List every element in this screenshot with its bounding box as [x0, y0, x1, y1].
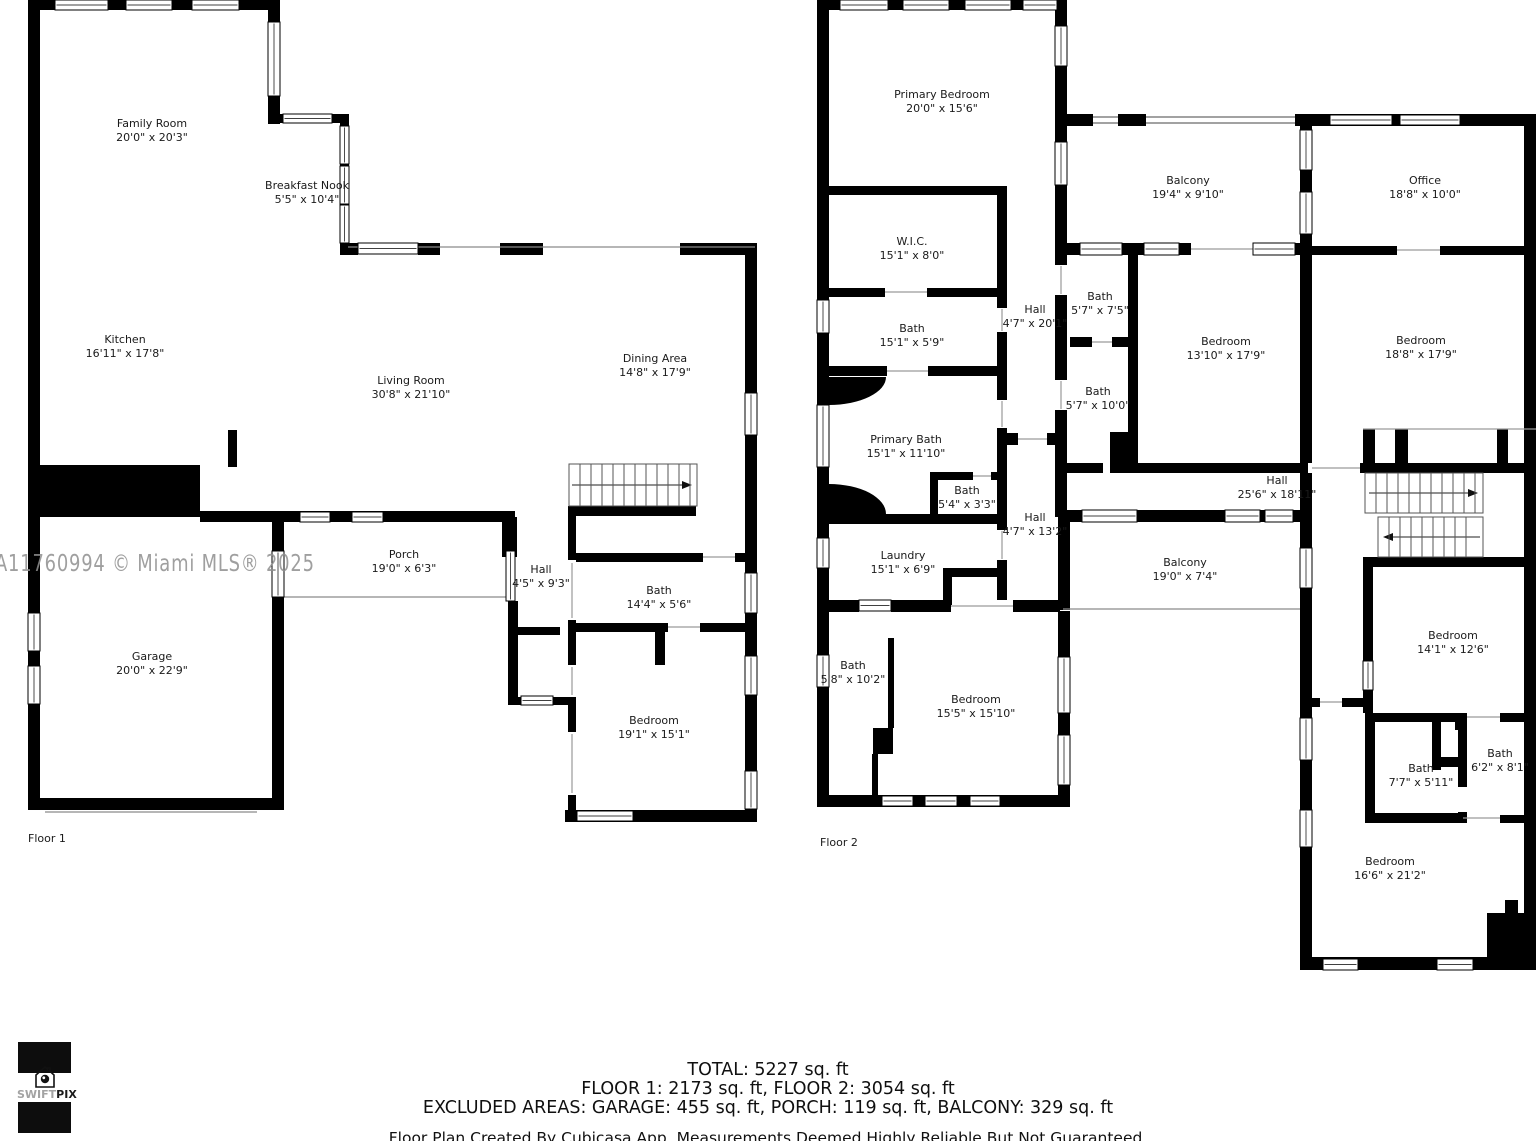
room-label-hall-f2-c: Hall25'6" x 18'11": [1238, 474, 1317, 502]
floor-plan-canvas: Family Room20'0" x 20'3" Breakfast Nook5…: [0, 0, 1536, 1141]
room-label-wic: W.I.C.15'1" x 8'0": [880, 235, 945, 263]
room-label-laundry: Laundry15'1" x 6'9": [871, 549, 936, 577]
room-label-bath-f2-c: Bath5'8" x 10'2": [821, 659, 886, 687]
summary-total: TOTAL: 5227 sq. ft: [0, 1060, 1536, 1080]
room-label-bedroom-f2-b: Bedroom13'10" x 17'9": [1187, 335, 1266, 363]
room-label-primary-bath: Primary Bath15'1" x 11'10": [867, 433, 946, 461]
room-label-balcony-a: Balcony19'4" x 9'10": [1152, 174, 1224, 202]
room-label-bedroom-f2-a: Bedroom15'5" x 15'10": [937, 693, 1016, 721]
room-label-bath-f1: Bath14'4" x 5'6": [627, 584, 692, 612]
summary-disclaimer: Floor Plan Created By Cubicasa App. Meas…: [0, 1129, 1536, 1141]
room-label-bath-f2-g: Bath6'2" x 8'1": [1471, 747, 1529, 775]
room-label-breakfast-nook: Breakfast Nook5'5" x 10'4": [265, 179, 349, 207]
room-label-bath-f2-a: Bath15'1" x 5'9": [880, 322, 945, 350]
room-label-bedroom-f2-d: Bedroom14'1" x 12'6": [1417, 629, 1489, 657]
room-label-bedroom-f2-e: Bedroom16'6" x 21'2": [1354, 855, 1426, 883]
room-label-bath-f2-d: Bath5'7" x 7'5": [1071, 290, 1129, 318]
room-label-garage: Garage20'0" x 22'9": [116, 650, 188, 678]
room-label-bath-f2-b: Bath5'4" x 3'3": [938, 484, 996, 512]
room-label-hall-f2-b: Hall4'7" x 13'2": [1003, 511, 1068, 539]
room-label-living-room: Living Room30'8" x 21'10": [372, 374, 451, 402]
room-label-porch: Porch19'0" x 6'3": [372, 548, 437, 576]
room-label-bath-f2-f: Bath7'7" x 5'11": [1389, 762, 1454, 790]
floor2-label: Floor 2: [820, 836, 858, 849]
room-label-kitchen: Kitchen16'11" x 17'8": [86, 333, 165, 361]
floor1-label: Floor 1: [28, 832, 66, 845]
room-label-bedroom-f2-c: Bedroom18'8" x 17'9": [1385, 334, 1457, 362]
room-label-bedroom-f1: Bedroom19'1" x 15'1": [618, 714, 690, 742]
room-label-primary-bedroom: Primary Bedroom20'0" x 15'6": [894, 88, 990, 116]
room-label-hall-f1: Hall4'5" x 9'3": [512, 563, 570, 591]
room-label-family-room: Family Room20'0" x 20'3": [116, 117, 188, 145]
summary-excluded: EXCLUDED AREAS: GARAGE: 455 sq. ft, PORC…: [0, 1098, 1536, 1118]
mls-watermark: A11760994 © Miami MLS® 2025: [0, 551, 315, 577]
room-label-office: Office18'8" x 10'0": [1389, 174, 1461, 202]
room-label-bath-f2-e: Bath5'7" x 10'0": [1066, 385, 1131, 413]
room-label-dining-area: Dining Area14'8" x 17'9": [619, 352, 691, 380]
room-label-hall-f2-a: Hall4'7" x 20'1": [1003, 303, 1068, 331]
summary-floors: FLOOR 1: 2173 sq. ft, FLOOR 2: 3054 sq. …: [0, 1079, 1536, 1099]
room-label-balcony-b: Balcony19'0" x 7'4": [1153, 556, 1218, 584]
